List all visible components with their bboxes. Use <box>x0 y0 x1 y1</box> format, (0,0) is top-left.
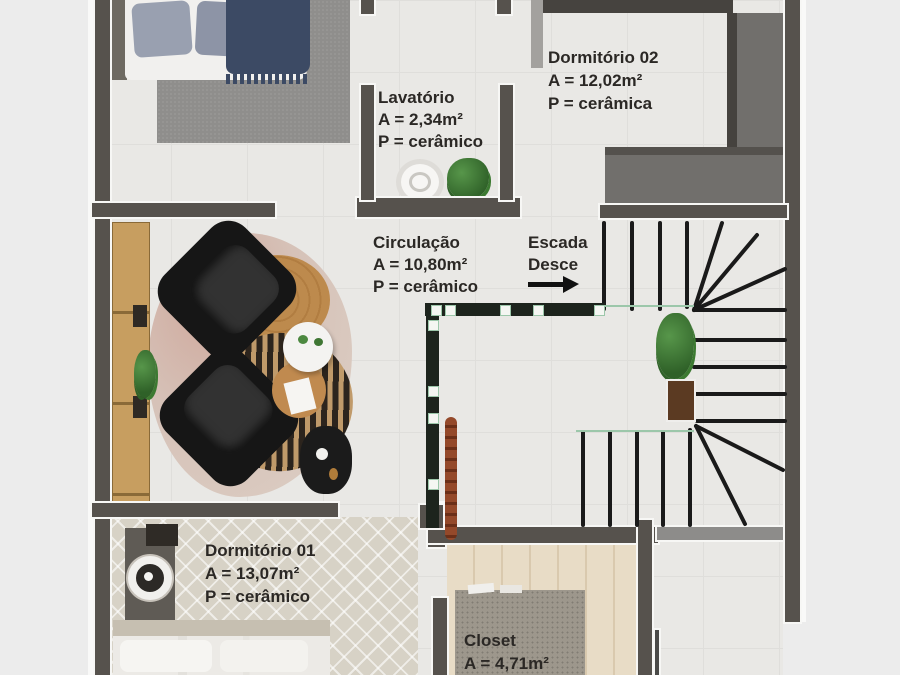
room-area: A = 13,07m² <box>205 562 316 585</box>
railing-post <box>428 320 439 331</box>
bed-headboard <box>113 620 330 637</box>
folded-clothes <box>500 585 522 593</box>
blanket-fringe <box>226 74 310 84</box>
stairs-direction-arrow-icon <box>528 276 580 293</box>
wall-stub <box>531 0 543 68</box>
room-name: Dormitório 01 <box>205 539 316 562</box>
railing-post <box>431 305 442 316</box>
room-name: Closet <box>464 629 549 652</box>
planter <box>666 379 696 422</box>
wall <box>785 0 800 622</box>
sideboard-accent <box>133 396 147 418</box>
room-name: Circulação <box>373 232 478 254</box>
room-area: A = 2,34m² <box>378 109 483 131</box>
room-label-closet: Closet A = 4,71m² <box>464 629 549 675</box>
stairs-label-line: Escada <box>528 232 588 254</box>
railing-post <box>428 479 439 490</box>
sideboard-accent <box>133 305 147 327</box>
wall <box>500 85 513 200</box>
dresser <box>533 0 733 13</box>
railing-post <box>428 386 439 397</box>
railing-post <box>594 305 605 316</box>
railing-post <box>533 305 544 316</box>
lamp-bulb <box>144 572 153 581</box>
wall <box>357 198 520 217</box>
wall <box>638 520 652 675</box>
wardrobe <box>727 13 787 147</box>
railing-post <box>428 413 439 424</box>
room-name: Lavatório <box>378 87 483 109</box>
bed-blanket <box>226 0 310 74</box>
wall <box>497 0 511 14</box>
wardrobe <box>605 147 787 204</box>
stairs-label: Escada Desce <box>528 232 588 276</box>
wall <box>95 0 110 675</box>
ottoman <box>300 426 352 494</box>
room-floor: P = cerâmico <box>373 276 478 298</box>
room-area: A = 4,71m² <box>464 652 549 675</box>
room-floor: P = cerâmica <box>548 92 659 115</box>
wall <box>92 203 275 217</box>
stairs-label-line: Desce <box>528 254 588 276</box>
room-floor: P = cerâmico <box>378 131 483 153</box>
glass-partition <box>655 630 659 675</box>
room-area: A = 10,80m² <box>373 254 478 276</box>
wall <box>92 503 338 517</box>
bead-curtain <box>445 417 457 540</box>
railing-post <box>445 305 456 316</box>
pillow <box>220 640 308 672</box>
room-label-circulacao: Circulação A = 10,80m² P = cerâmico <box>373 232 478 298</box>
pillow <box>131 0 193 58</box>
wall <box>361 0 374 14</box>
background <box>783 624 823 675</box>
wall <box>428 527 658 543</box>
room-label-dormitorio-02: Dormitório 02 A = 12,02m² P = cerâmica <box>548 46 659 115</box>
wall <box>433 598 447 675</box>
room-name: Dormitório 02 <box>548 46 659 69</box>
coffee-table <box>283 322 333 372</box>
wall <box>600 205 787 218</box>
wall <box>361 85 374 200</box>
cup <box>316 448 328 460</box>
railing-post <box>500 305 511 316</box>
nightstand-box <box>146 524 178 546</box>
pillow <box>120 640 212 672</box>
wall-outline <box>800 0 806 622</box>
decor-gold <box>329 468 338 480</box>
floor-plan: Dormitório 02 A = 12,02m² P = cerâmica L… <box>0 0 900 675</box>
room-label-dormitorio-01: Dormitório 01 A = 13,07m² P = cerâmico <box>205 539 316 608</box>
table-plant <box>314 338 323 346</box>
wall <box>657 527 783 540</box>
room-area: A = 12,02m² <box>548 69 659 92</box>
room-label-lavatorio: Lavatório A = 2,34m² P = cerâmico <box>378 87 483 153</box>
table-plant <box>298 335 308 344</box>
room-floor: P = cerâmico <box>205 585 316 608</box>
wall-outline <box>88 0 95 675</box>
